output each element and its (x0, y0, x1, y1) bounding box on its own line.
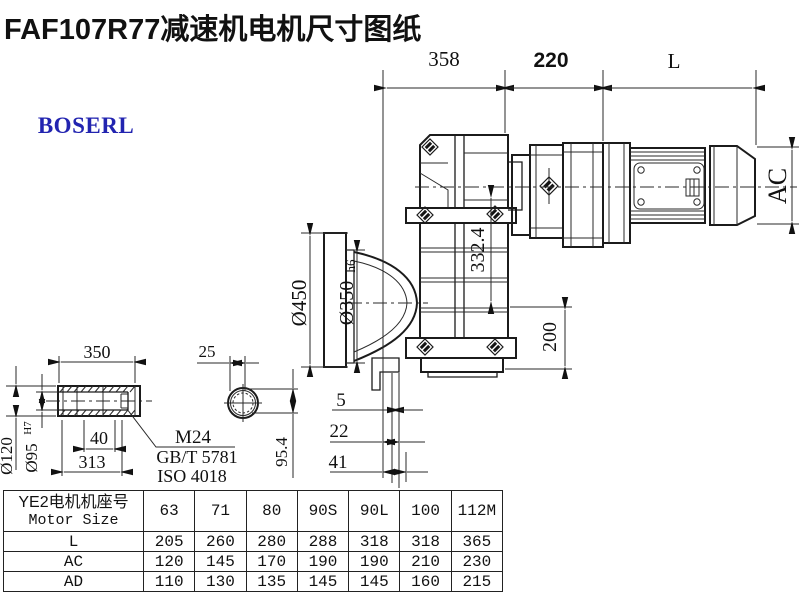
table-cell: 190 (349, 552, 400, 572)
dim-offset-mid: 22 (330, 421, 349, 442)
note-standard-gb: GB/T 5781 (156, 447, 237, 467)
row-label: AD (4, 572, 144, 592)
note-standard-iso: ISO 4018 (157, 466, 227, 486)
dim-shaft-inner-length: 313 (79, 452, 106, 472)
dim-offset-small: 5 (336, 390, 346, 411)
dim-bore-tol: H7 (22, 421, 34, 435)
table-row: AD 110 130 135 145 145 160 215 (4, 572, 503, 592)
dim-flange-od: Ø450 (287, 280, 311, 327)
dim-shaft-od: Ø120 (0, 437, 16, 475)
dim-flange-spigot-tol: h6 (343, 259, 358, 273)
dim-motor-height: AC (763, 168, 792, 204)
dim-adapter-length: 220 (533, 49, 568, 72)
page-title: FAF107R77减速机电机尺寸图纸 (4, 6, 421, 48)
table-cell: 145 (349, 572, 400, 592)
table-cell: 210 (400, 552, 451, 572)
table-header-en: Motor Size (4, 512, 143, 529)
table-cell: 288 (297, 532, 348, 552)
col-header: 90S (297, 491, 348, 532)
table-cell: 190 (297, 552, 348, 572)
dim-offset-large: 41 (329, 452, 348, 473)
table-cell: 280 (246, 532, 297, 552)
table-header-cn: YE2电机机座号 (4, 494, 143, 512)
col-header: 63 (144, 491, 195, 532)
plug-icon (487, 339, 503, 355)
table-cell: 365 (451, 532, 502, 552)
table-cell: 145 (297, 572, 348, 592)
dim-shaft-length: 350 (84, 342, 111, 362)
table-cell: 215 (451, 572, 502, 592)
table-cell: 205 (144, 532, 195, 552)
table-row: L 205 260 280 288 318 318 365 (4, 532, 503, 552)
table-cell: 260 (195, 532, 246, 552)
row-label: L (4, 532, 144, 552)
table-cell: 318 (400, 532, 451, 552)
dim-center-height: 332.4 (467, 228, 489, 273)
table-cell: 110 (144, 572, 195, 592)
row-label: AC (4, 552, 144, 572)
dim-base-height: 200 (539, 322, 561, 352)
plug-icon (417, 207, 433, 223)
dim-flange-spigot: Ø350 (336, 281, 358, 325)
boserl-logo-text: BOSERL (38, 113, 134, 139)
table-cell: 145 (195, 552, 246, 572)
dim-key-width: 25 (199, 342, 216, 361)
table-cell: 230 (451, 552, 502, 572)
table-cell: 170 (246, 552, 297, 572)
table-cell: 135 (246, 572, 297, 592)
table-cell: 130 (195, 572, 246, 592)
motor-size-table: YE2电机机座号 Motor Size 63 71 80 90S 90L 100… (3, 490, 503, 592)
col-header: 112M (451, 491, 502, 532)
table-header-row: YE2电机机座号 Motor Size 63 71 80 90S 90L 100… (4, 491, 503, 532)
dim-housing-depth: 358 (428, 47, 460, 71)
col-header: 80 (246, 491, 297, 532)
dim-key-height: 95.4 (272, 437, 291, 467)
col-header: 100 (400, 491, 451, 532)
col-header: 71 (195, 491, 246, 532)
motor (603, 143, 755, 243)
boserl-logo: BOSERL (38, 108, 134, 144)
table-cell: 160 (400, 572, 451, 592)
plug-icon (417, 339, 433, 355)
table-cell: 318 (349, 532, 400, 552)
dim-bore-dia: Ø95 (22, 443, 41, 472)
note-thread: M24 (175, 427, 211, 448)
input-adapter (512, 143, 603, 247)
dim-bore-step: 40 (90, 428, 108, 448)
table-header-motor-size: YE2电机机座号 Motor Size (4, 491, 144, 532)
table-row: AC 120 145 170 190 190 210 230 (4, 552, 503, 572)
dim-motor-length: L (668, 49, 681, 73)
drawing-canvas: 358 220 L AC Ø450 Ø350 h6 332.4 200 5 22… (0, 0, 800, 596)
col-header: 90L (349, 491, 400, 532)
table-cell: 120 (144, 552, 195, 572)
dimension-lines-main (301, 70, 799, 488)
